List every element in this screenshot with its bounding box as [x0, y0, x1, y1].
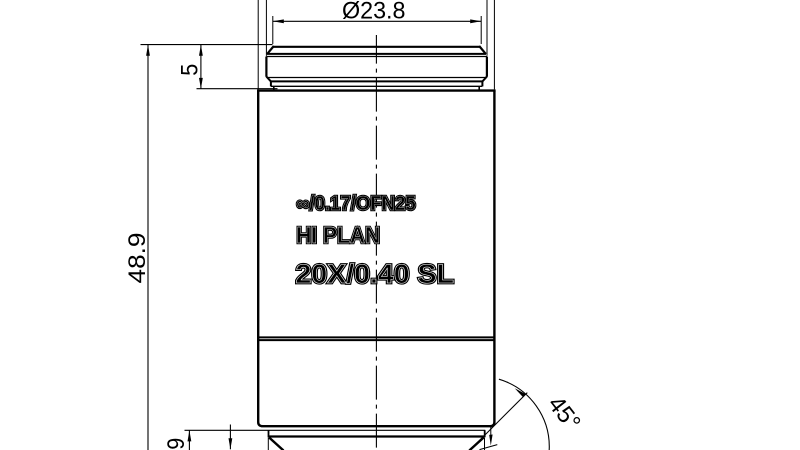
svg-text:∞/0.17/OFN25: ∞/0.17/OFN25: [296, 193, 416, 215]
svg-text:20X/0.40 SL: 20X/0.40 SL: [296, 259, 455, 289]
svg-text:48.9: 48.9: [124, 233, 151, 284]
svg-text:HI PLAN: HI PLAN: [296, 222, 380, 248]
svg-text:9: 9: [163, 438, 190, 450]
svg-text:5: 5: [177, 64, 204, 76]
svg-text:Ø23.8: Ø23.8: [342, 0, 406, 25]
